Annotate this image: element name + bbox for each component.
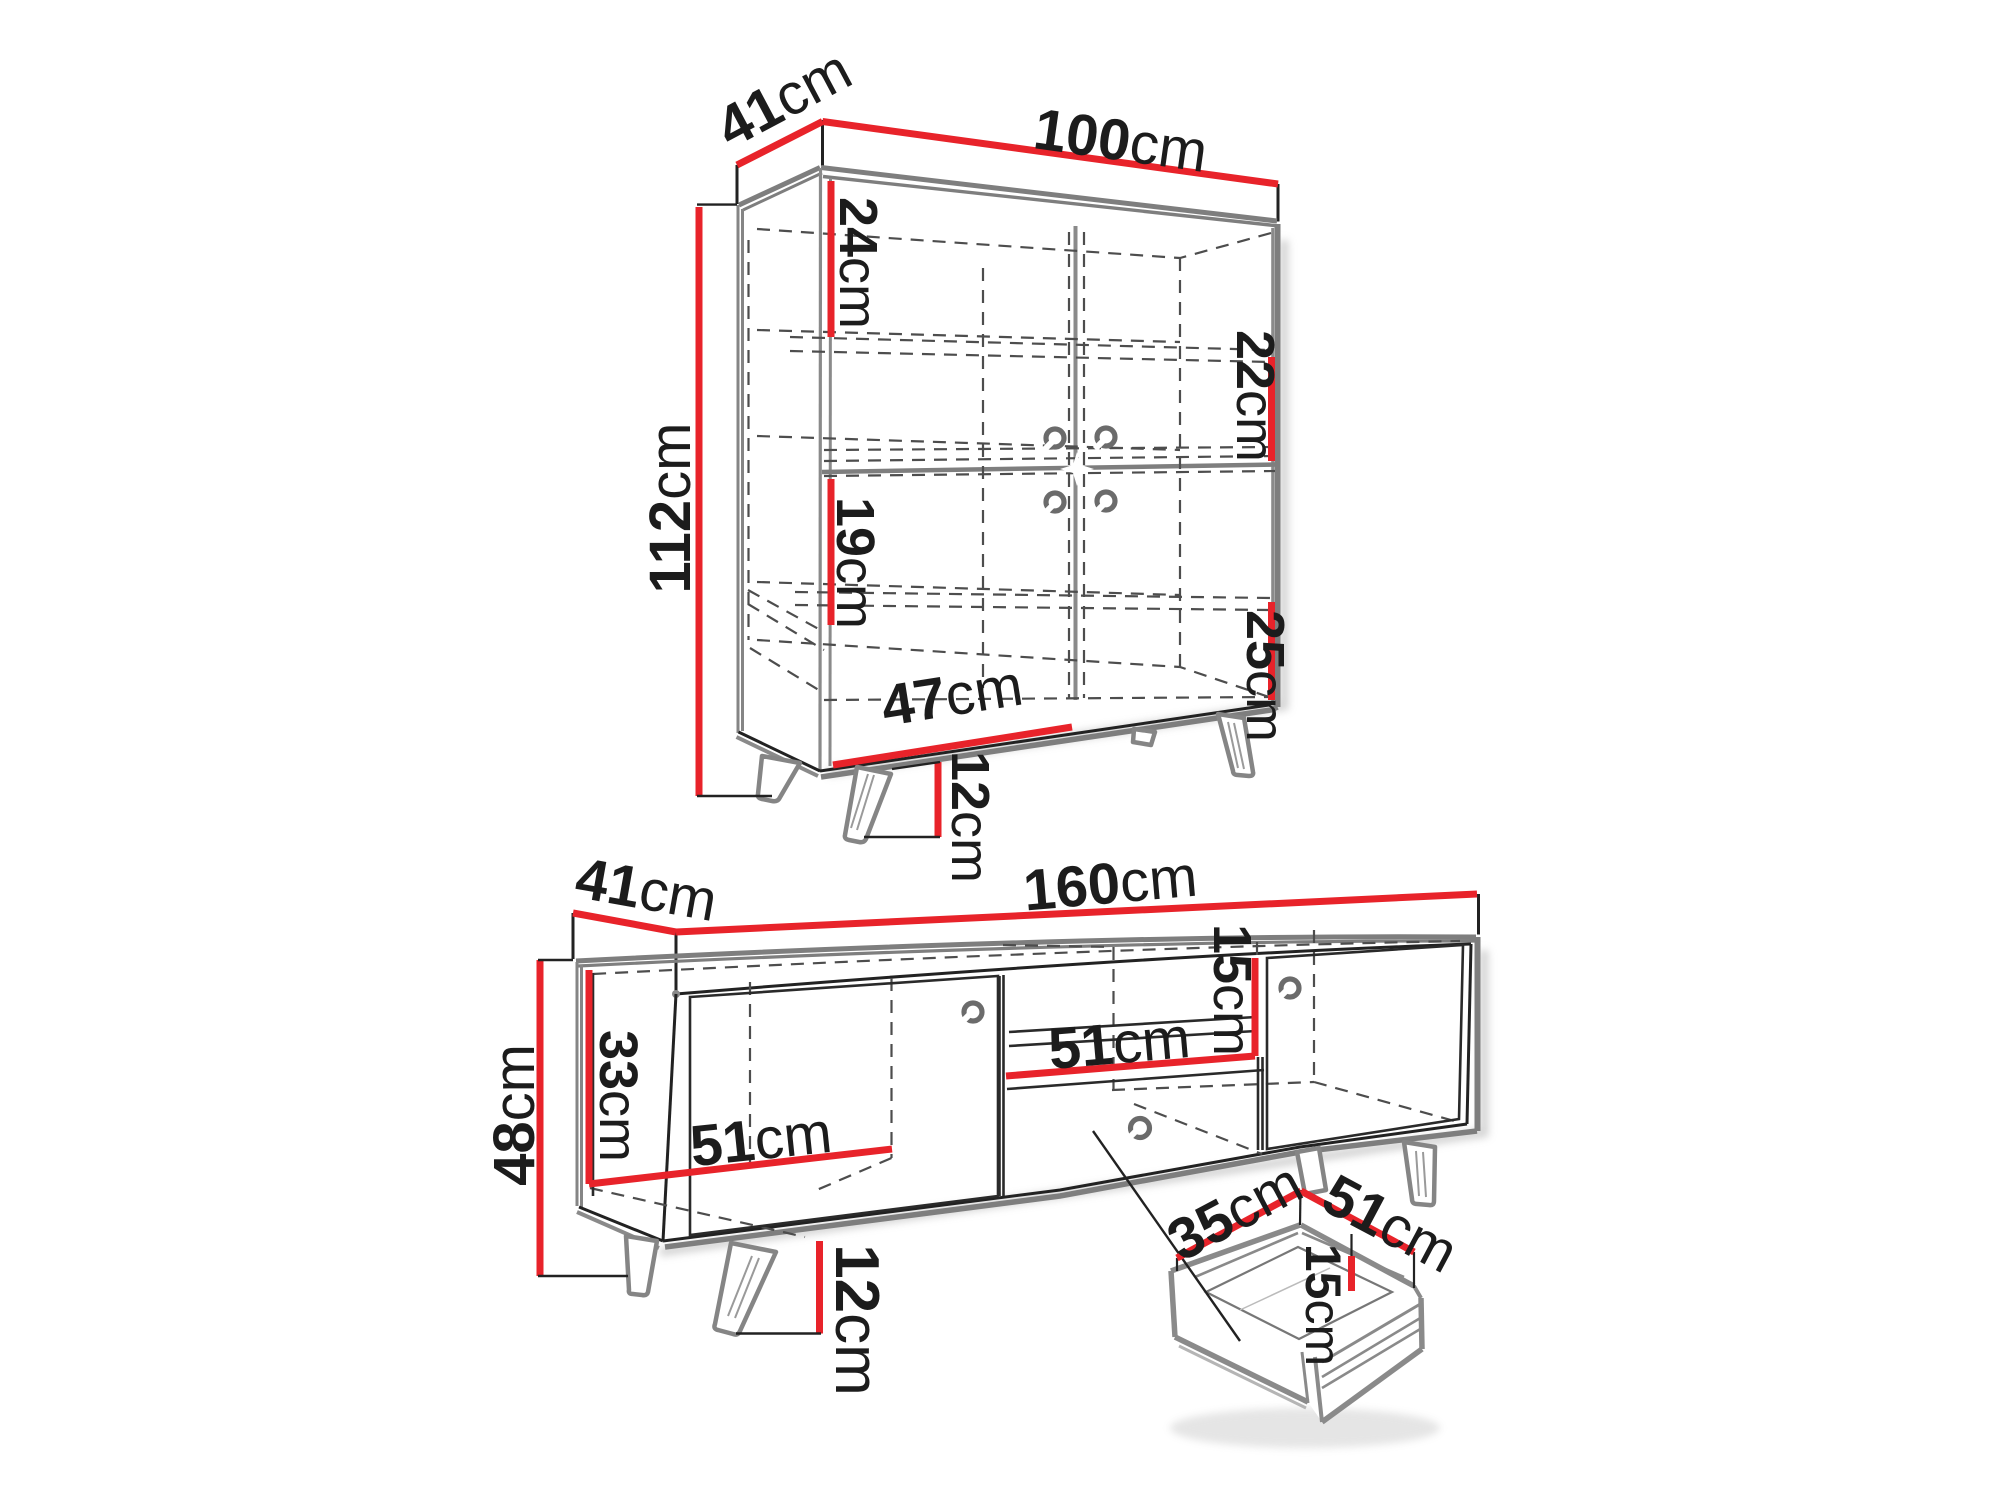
svg-text:15cm: 15cm: [1295, 1244, 1351, 1366]
svg-text:19cm: 19cm: [825, 497, 885, 629]
svg-text:22cm: 22cm: [1225, 330, 1285, 462]
svg-text:51cm: 51cm: [1046, 1005, 1193, 1082]
svg-text:24cm: 24cm: [828, 197, 888, 329]
svg-text:12cm: 12cm: [822, 1244, 891, 1396]
svg-text:48cm: 48cm: [482, 1044, 547, 1186]
svg-text:25cm: 25cm: [1235, 610, 1295, 742]
svg-text:12cm: 12cm: [940, 751, 1000, 883]
svg-text:15cm: 15cm: [1202, 924, 1262, 1056]
svg-text:33cm: 33cm: [588, 1030, 648, 1162]
svg-text:112cm: 112cm: [638, 423, 703, 594]
